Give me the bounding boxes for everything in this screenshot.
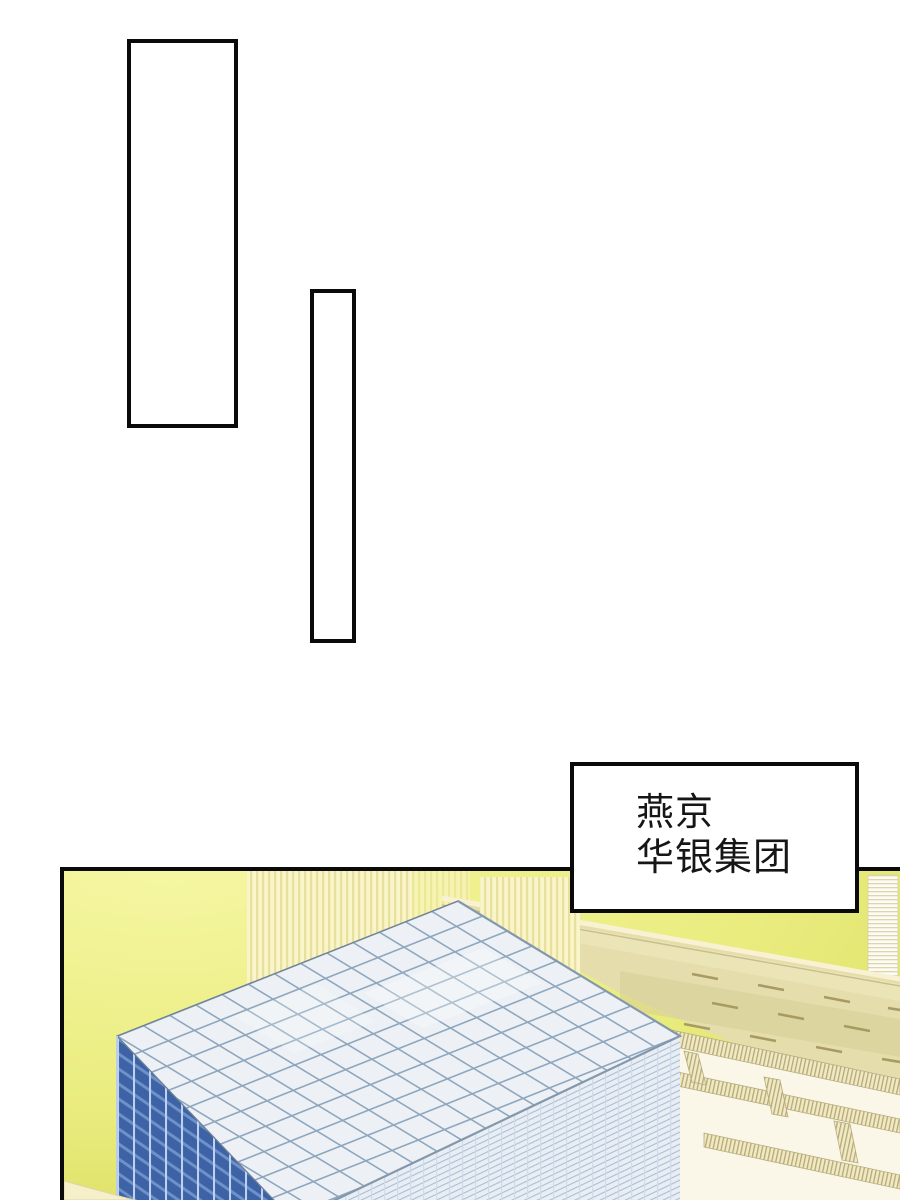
- caption-line-1: 燕京: [636, 791, 855, 836]
- comic-page: 燕京 华银集团: [0, 0, 900, 1200]
- caption-line-2: 华银集团: [636, 836, 855, 881]
- scene-panel: [60, 867, 900, 1200]
- caption-box: 燕京 华银集团: [570, 762, 859, 913]
- empty-speech-panel-1: [127, 39, 238, 428]
- city-building-illustration: [64, 871, 900, 1200]
- empty-speech-panel-2: [310, 289, 356, 643]
